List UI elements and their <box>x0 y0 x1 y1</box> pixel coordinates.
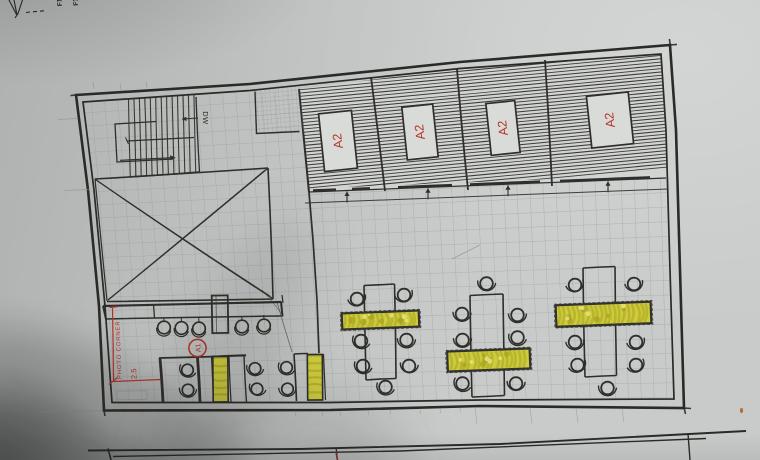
svg-text:DW: DW <box>201 111 210 125</box>
svg-text:A2: A2 <box>330 133 346 150</box>
svg-text:PHOTO CORNER: PHOTO CORNER <box>115 320 123 379</box>
svg-text:F1: F1 <box>72 0 80 6</box>
svg-text:A2: A2 <box>412 124 428 141</box>
svg-text:A2: A2 <box>602 112 618 129</box>
svg-text:A1: A1 <box>193 343 203 353</box>
svg-text:F1: F1 <box>56 0 64 7</box>
svg-text:2.5: 2.5 <box>129 368 138 379</box>
svg-text:A2: A2 <box>495 120 511 137</box>
